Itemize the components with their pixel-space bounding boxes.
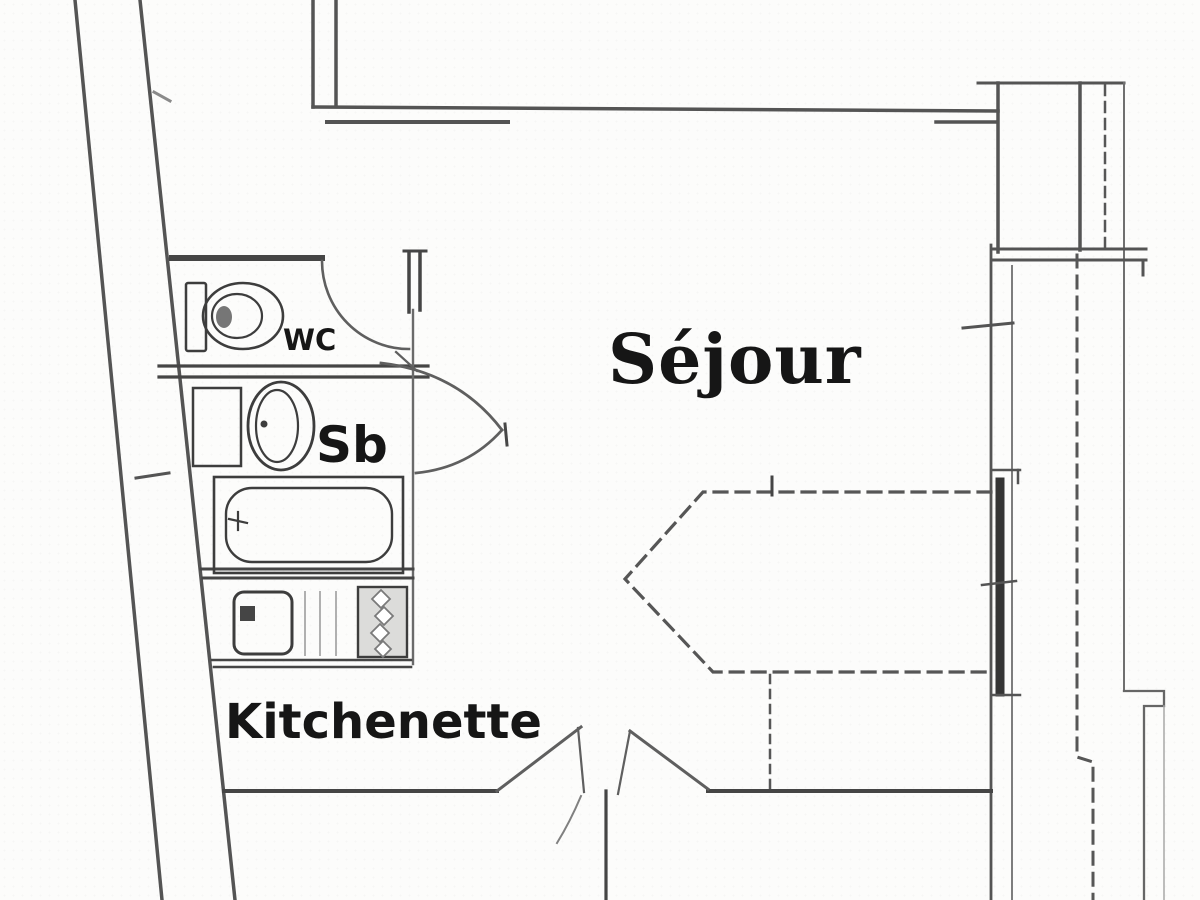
label-sb: Sb (316, 416, 388, 474)
wall-tick-325 (963, 323, 1013, 328)
bathroom-door-swing-upper (381, 363, 502, 430)
bathroom-door-swing-lower (416, 430, 502, 473)
folding-bed-dashed-outline (625, 492, 991, 672)
right-wall (963, 245, 1020, 900)
washbasin-faucet-dot (261, 421, 268, 428)
entry-door-leaf-1-edge (578, 728, 584, 792)
washbasin-outer (248, 382, 314, 470)
kitchen-sink (234, 592, 292, 654)
toilet-bowl-outer (203, 283, 283, 349)
exterior-walls (75, 0, 998, 900)
toilet-drain (216, 306, 232, 328)
dashed-lines (625, 85, 1105, 900)
balcony-step (1124, 691, 1164, 900)
label-wc: WC (283, 323, 336, 357)
left-slanted-wall-inner (140, 0, 235, 900)
left-slanted-wall-outer (75, 0, 162, 900)
bathroom-cabinet (193, 388, 241, 466)
label-sejour: Séjour (608, 320, 862, 400)
left-wall-tick-upper (154, 92, 170, 101)
bathtub-inner (226, 488, 392, 562)
bathtub-outer (214, 477, 403, 573)
entry-door-swing-arc (557, 796, 581, 843)
entry-door-leaf-2-edge (618, 731, 630, 794)
label-kitchenette: Kitchenette (225, 694, 542, 750)
top-wall-outer (313, 107, 998, 111)
left-wall-tick-mid (136, 473, 169, 478)
floor-plan: Séjour Sb WC Kitchenette (0, 0, 1200, 900)
bathroom-door-apex-tick (505, 424, 507, 445)
floor-plan-drawing: Séjour Sb WC Kitchenette (0, 0, 1200, 900)
entry-door-leaf-2 (630, 731, 708, 789)
top-right-structure (978, 83, 1164, 900)
balcony-dashed-main (1077, 255, 1093, 900)
room-labels: Séjour Sb WC Kitchenette (225, 320, 862, 750)
kitchen-sink-faucet (240, 606, 255, 621)
